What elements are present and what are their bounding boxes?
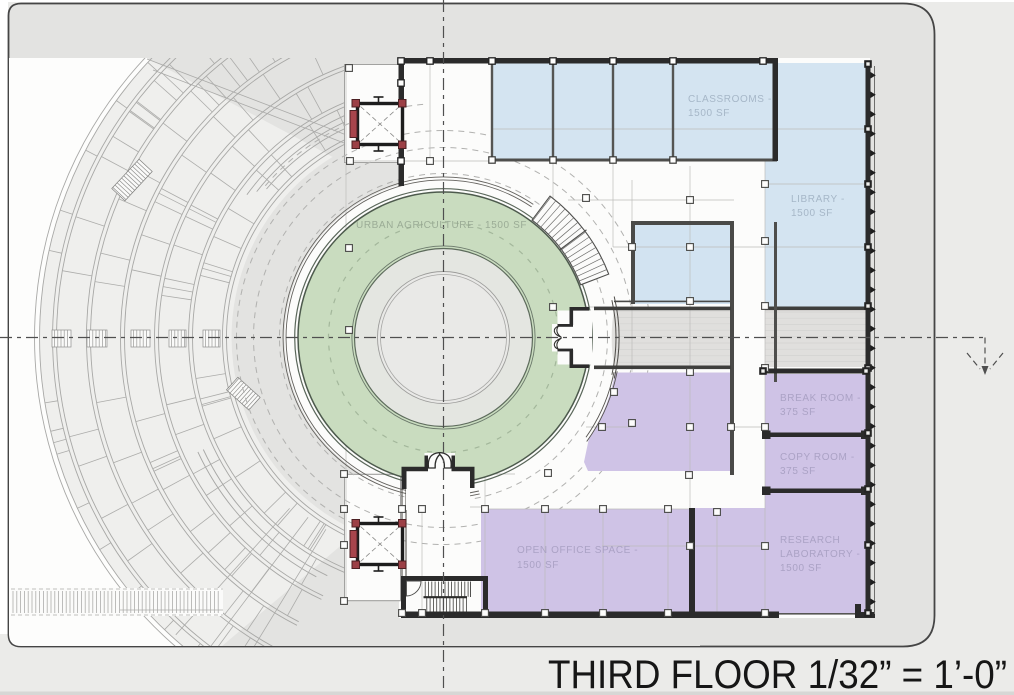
svg-text:1500 SF: 1500 SF [780, 563, 822, 574]
svg-text:URBAN AGRICULTURE - 1500 SF: URBAN AGRICULTURE - 1500 SF [356, 220, 527, 231]
svg-text:LABORATORY -: LABORATORY - [780, 549, 860, 560]
svg-text:375 SF: 375 SF [780, 407, 816, 418]
svg-text:THIRD FLOOR 1/32” = 1’-0”: THIRD FLOOR 1/32” = 1’-0” [548, 653, 1007, 695]
svg-text:1500 SF: 1500 SF [791, 208, 833, 219]
svg-text:OPEN OFFICE SPACE -: OPEN OFFICE SPACE - [517, 545, 638, 556]
svg-text:CLASSROOMS -: CLASSROOMS - [688, 94, 772, 105]
svg-text:BREAK ROOM -: BREAK ROOM - [780, 393, 861, 404]
svg-text:375 SF: 375 SF [780, 466, 816, 477]
svg-text:1500 SF: 1500 SF [517, 560, 559, 571]
svg-text:COPY ROOM -: COPY ROOM - [780, 452, 855, 463]
svg-text:1500 SF: 1500 SF [688, 108, 730, 119]
svg-text:LIBRARY -: LIBRARY - [791, 194, 845, 205]
svg-text:RESEARCH: RESEARCH [780, 535, 840, 546]
